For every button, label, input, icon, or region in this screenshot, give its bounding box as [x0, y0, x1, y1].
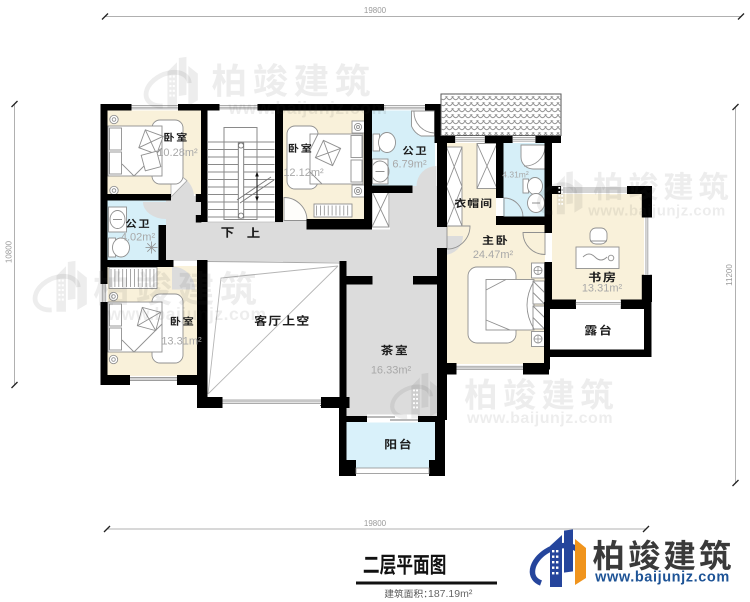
svg-text:www.baijunjz.com: www.baijunjz.com — [227, 98, 387, 118]
svg-text:6.79m²: 6.79m² — [392, 159, 427, 171]
svg-text:www.baijunjz.com: www.baijunjz.com — [587, 203, 725, 220]
svg-text:10.28m²: 10.28m² — [157, 147, 198, 159]
svg-text:www.baijunjz.com: www.baijunjz.com — [466, 410, 613, 427]
svg-text:13.31m²: 13.31m² — [582, 283, 623, 295]
svg-text:www.baijunjz.com: www.baijunjz.com — [594, 570, 730, 586]
svg-text:11200: 11200 — [725, 264, 734, 286]
svg-text:10800: 10800 — [5, 240, 14, 263]
svg-text:4.31m²: 4.31m² — [502, 170, 529, 180]
svg-text:19800: 19800 — [364, 6, 387, 15]
svg-text:19800: 19800 — [364, 519, 387, 528]
svg-text:24.47m²: 24.47m² — [473, 249, 514, 261]
svg-text:4.02m²: 4.02m² — [121, 232, 156, 244]
svg-text:187.19m²: 187.19m² — [428, 588, 473, 600]
svg-text:13.31m²: 13.31m² — [161, 336, 202, 348]
svg-text:12.12m²: 12.12m² — [283, 167, 324, 179]
svg-text:16.33m²: 16.33m² — [371, 365, 412, 377]
